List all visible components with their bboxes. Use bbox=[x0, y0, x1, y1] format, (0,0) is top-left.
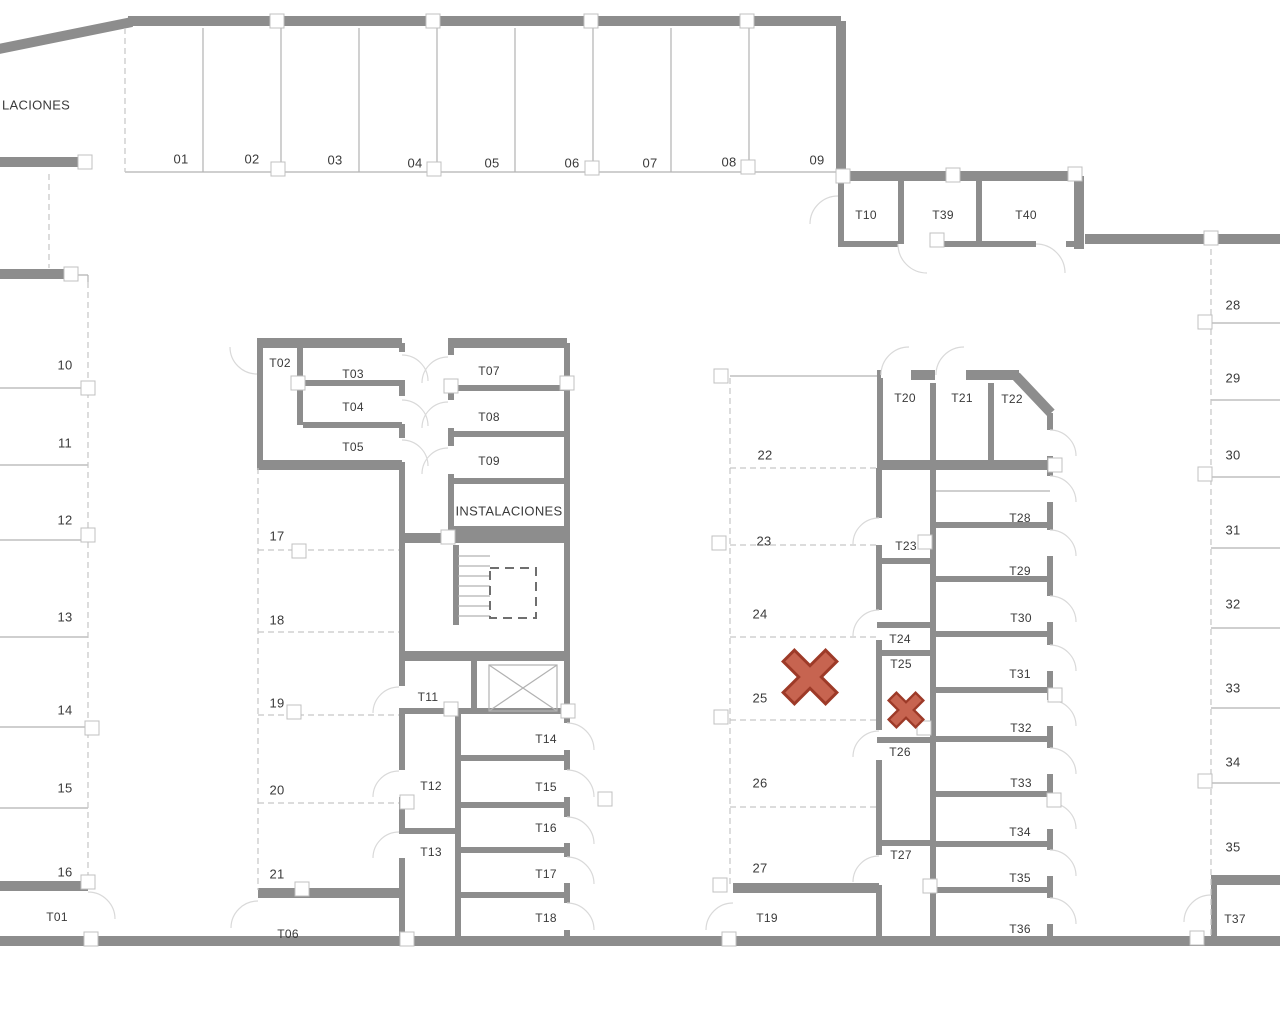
room-t30-label: T30 bbox=[1010, 611, 1032, 625]
room-t32-label: T32 bbox=[1010, 721, 1032, 735]
space-13-label: 13 bbox=[57, 610, 72, 625]
room-t23-label: T23 bbox=[895, 539, 917, 553]
room-t35-label: T35 bbox=[1009, 871, 1031, 885]
room-t19-label: T19 bbox=[756, 911, 778, 925]
space-17-label: 17 bbox=[269, 529, 284, 544]
space-24-label: 24 bbox=[752, 607, 767, 622]
space-34-label: 34 bbox=[1225, 755, 1240, 770]
room-t29-label: T29 bbox=[1009, 564, 1031, 578]
column-markers bbox=[64, 14, 1218, 946]
door-arcs bbox=[88, 196, 1211, 930]
space-27-label: 27 bbox=[752, 861, 767, 876]
floor-plan-drawing bbox=[0, 0, 1280, 1024]
x-mark-large bbox=[768, 635, 853, 720]
room-t17-label: T17 bbox=[535, 867, 557, 881]
room-t08-label: T08 bbox=[478, 410, 500, 424]
room-t37-label: T37 bbox=[1224, 912, 1246, 926]
instalaciones-truncated-label: LACIONES bbox=[2, 98, 70, 113]
room-t20-label: T20 bbox=[894, 391, 916, 405]
space-11-label: 11 bbox=[58, 436, 72, 451]
space-22-label: 22 bbox=[757, 448, 772, 463]
space-19-label: 19 bbox=[269, 696, 284, 711]
space-18-label: 18 bbox=[269, 613, 284, 628]
dashed-lines bbox=[49, 28, 1211, 938]
room-t36-label: T36 bbox=[1009, 922, 1031, 936]
room-t02-label: T02 bbox=[269, 356, 291, 370]
room-t28-label: T28 bbox=[1009, 511, 1031, 525]
space-33-label: 33 bbox=[1225, 681, 1240, 696]
room-t18-label: T18 bbox=[535, 911, 557, 925]
room-t26-label: T26 bbox=[889, 745, 911, 759]
space-04-label: 04 bbox=[407, 156, 422, 171]
space-12-label: 12 bbox=[57, 513, 72, 528]
thin-lines bbox=[0, 28, 1280, 808]
space-08-label: 08 bbox=[721, 155, 736, 170]
room-t15-label: T15 bbox=[535, 780, 557, 794]
space-32-label: 32 bbox=[1225, 597, 1240, 612]
room-t06-label: T06 bbox=[277, 927, 299, 941]
space-25-label: 25 bbox=[752, 691, 767, 706]
space-02-label: 02 bbox=[244, 152, 259, 167]
room-t34-label: T34 bbox=[1009, 825, 1031, 839]
room-t21-label: T21 bbox=[951, 391, 973, 405]
space-26-label: 26 bbox=[752, 776, 767, 791]
room-t33-label: T33 bbox=[1010, 776, 1032, 790]
walls-outer bbox=[0, 21, 1280, 941]
space-31-label: 31 bbox=[1225, 523, 1240, 538]
room-t03-label: T03 bbox=[342, 367, 364, 381]
space-14-label: 14 bbox=[57, 703, 72, 718]
space-16-label: 16 bbox=[57, 865, 72, 880]
room-t05-label: T05 bbox=[342, 440, 364, 454]
room-t40-label: T40 bbox=[1015, 208, 1037, 222]
room-t27-label: T27 bbox=[890, 848, 912, 862]
room-t31-label: T31 bbox=[1009, 667, 1031, 681]
room-t10-label: T10 bbox=[855, 208, 877, 222]
room-t24-label: T24 bbox=[889, 632, 911, 646]
space-03-label: 03 bbox=[327, 153, 342, 168]
space-06-label: 06 bbox=[564, 156, 579, 171]
space-35-label: 35 bbox=[1225, 840, 1240, 855]
space-30-label: 30 bbox=[1225, 448, 1240, 463]
elevator-dashed-box bbox=[490, 568, 536, 618]
space-28-label: 28 bbox=[1225, 298, 1240, 313]
space-23-label: 23 bbox=[756, 534, 771, 549]
room-t22-label: T22 bbox=[1001, 392, 1023, 406]
room-t09-label: T09 bbox=[478, 454, 500, 468]
room-t14-label: T14 bbox=[535, 732, 557, 746]
space-07-label: 07 bbox=[642, 156, 657, 171]
room-t13-label: T13 bbox=[420, 845, 442, 859]
space-21-label: 21 bbox=[269, 867, 284, 882]
space-10-label: 10 bbox=[57, 358, 72, 373]
space-15-label: 15 bbox=[57, 781, 72, 796]
instalaciones-room-label: INSTALACIONES bbox=[456, 504, 563, 519]
space-05-label: 05 bbox=[484, 156, 499, 171]
floor-plan: LACIONES INSTALACIONES 01 02 03 04 05 06… bbox=[0, 0, 1280, 1024]
space-01-label: 01 bbox=[173, 152, 188, 167]
room-t39-label: T39 bbox=[932, 208, 954, 222]
space-09-label: 09 bbox=[809, 153, 824, 168]
room-t01-label: T01 bbox=[46, 910, 68, 924]
room-t16-label: T16 bbox=[535, 821, 557, 835]
space-20-label: 20 bbox=[269, 783, 284, 798]
room-t07-label: T07 bbox=[478, 364, 500, 378]
space-29-label: 29 bbox=[1225, 371, 1240, 386]
walls-inner bbox=[260, 178, 1214, 941]
room-t04-label: T04 bbox=[342, 400, 364, 414]
room-t25-label: T25 bbox=[890, 657, 912, 671]
room-t12-label: T12 bbox=[420, 779, 442, 793]
room-t11-label: T11 bbox=[418, 690, 439, 704]
